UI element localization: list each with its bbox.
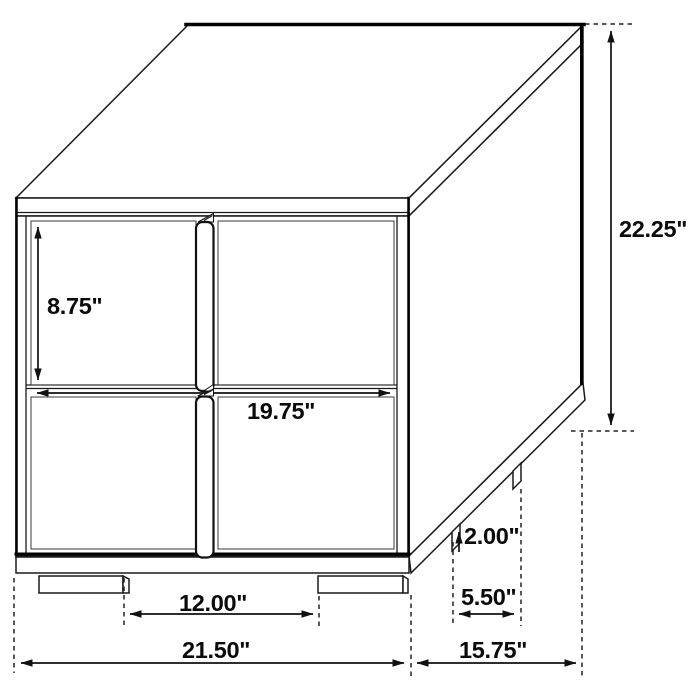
lower-drawer-handle — [196, 397, 214, 558]
nightstand-line-art: 8.75" 22.25" 19.75" 2.00" 5.50" 12.00" 2… — [0, 0, 700, 700]
dimension-diagram: 8.75" 22.25" 19.75" 2.00" 5.50" 12.00" 2… — [0, 0, 700, 700]
label-overall-height: 22.25" — [619, 216, 687, 242]
label-overall-width: 21.50" — [182, 637, 250, 663]
label-overall-depth: 15.75" — [459, 637, 527, 663]
drawer-handles — [196, 214, 214, 558]
label-front-leg-spacing: 12.00" — [179, 590, 247, 616]
upper-drawer-handle — [196, 222, 214, 391]
label-drawer-width: 19.75" — [247, 398, 315, 424]
front-left-leg — [39, 576, 123, 593]
front-right-leg-side — [403, 576, 408, 593]
label-drawer-front-height: 8.75" — [47, 293, 102, 319]
label-side-leg-spacing: 5.50" — [461, 584, 516, 610]
base-strip-front — [16, 557, 409, 573]
front-right-leg — [318, 576, 403, 593]
top-front-edge — [16, 198, 409, 216]
label-leg-height: 2.00" — [464, 523, 519, 549]
